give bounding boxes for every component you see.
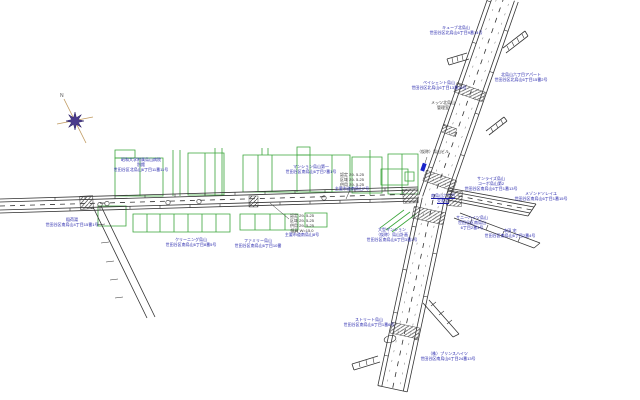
midblock-crosswalk	[249, 196, 258, 207]
intersection-crosswalks	[403, 189, 463, 207]
compass-star	[66, 112, 84, 130]
leader-lines	[270, 157, 427, 219]
side-stubs	[352, 31, 528, 370]
compass-rose	[57, 99, 93, 143]
west-road	[0, 187, 418, 213]
diagonal-road-upper	[418, 0, 519, 205]
buildings-layer	[98, 147, 418, 232]
map-drawing	[0, 0, 640, 400]
manhole-circles	[98, 196, 397, 344]
map-canvas[interactable]: N 昭和大学附属烏山病院別館世田谷区北烏山6丁目11番11号マンション烏山第一世…	[0, 0, 640, 400]
diagonal-road-lower	[376, 196, 448, 391]
compass-north-letter: N	[60, 93, 64, 99]
signal-marker	[420, 163, 426, 172]
